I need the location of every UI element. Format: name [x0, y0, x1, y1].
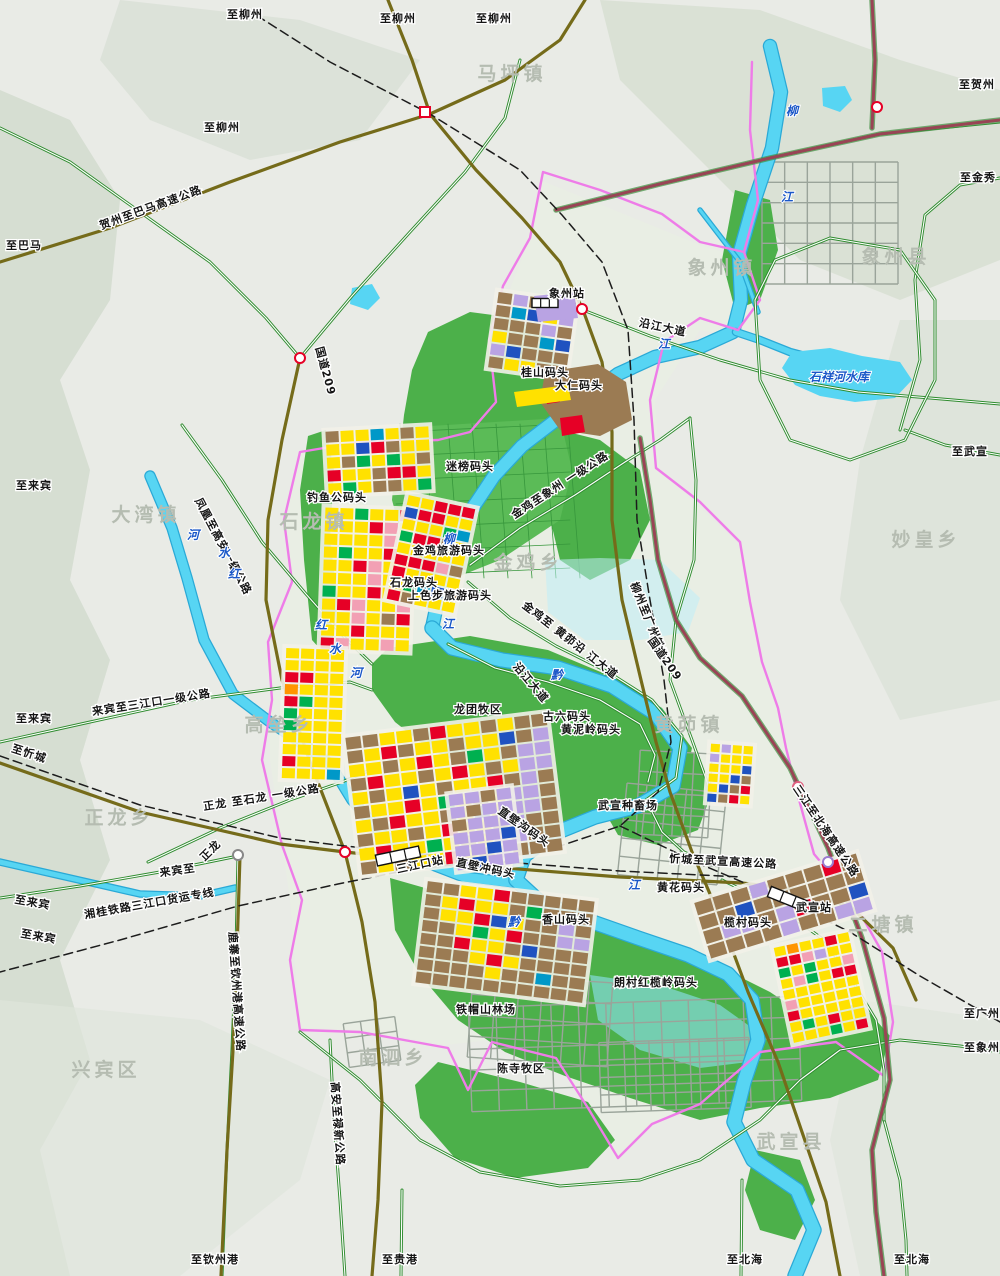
- map-label: 黄花码头: [657, 880, 705, 894]
- town-label: 黄茆镇: [654, 713, 723, 736]
- land-use-block: [327, 770, 340, 780]
- land-use-block: [327, 470, 341, 482]
- land-use-block: [539, 783, 555, 797]
- land-use-block: [316, 661, 329, 671]
- land-use-block: [457, 911, 473, 924]
- land-use-block: [538, 947, 554, 960]
- land-use-block: [338, 573, 351, 584]
- map-label: 古六码头: [543, 709, 591, 723]
- land-use-block: [523, 335, 538, 348]
- land-use-block: [381, 640, 394, 651]
- land-use-block: [330, 674, 343, 684]
- land-use-block: [313, 745, 326, 755]
- land-use-block: [518, 971, 534, 984]
- land-use-block: [508, 333, 523, 346]
- land-use-block: [368, 574, 381, 585]
- land-use-block: [554, 962, 570, 975]
- land-use-block: [420, 783, 436, 797]
- land-use-block: [434, 961, 450, 974]
- town-label: 南泗乡: [358, 1047, 427, 1069]
- land-use-block: [543, 810, 559, 824]
- land-use-block: [505, 943, 521, 956]
- land-use-block: [503, 956, 519, 969]
- land-use-block: [710, 754, 720, 763]
- land-use-block: [324, 533, 337, 544]
- land-use-block: [460, 885, 476, 898]
- map-label: 至巴马: [6, 239, 42, 252]
- land-use-block: [496, 788, 511, 801]
- land-use-block: [401, 440, 415, 452]
- land-use-block: [381, 614, 394, 625]
- land-use-block: [497, 292, 512, 305]
- land-use-block: [504, 852, 519, 865]
- land-use-block: [506, 346, 521, 359]
- land-use-block: [425, 825, 441, 839]
- land-use-block: [341, 443, 355, 455]
- land-use-block: [387, 454, 401, 466]
- map-label: 迷榜码头: [445, 459, 494, 473]
- land-use-block: [342, 469, 356, 481]
- land-use-block: [483, 980, 499, 993]
- land-use-block: [403, 785, 419, 799]
- land-use-block: [557, 327, 572, 340]
- land-use-block: [574, 938, 590, 951]
- land-use-block: [300, 673, 313, 683]
- land-use-block: [352, 792, 368, 806]
- land-use-block: [357, 833, 373, 847]
- land-use-block: [500, 982, 516, 995]
- land-use-block: [561, 898, 577, 911]
- land-use-block: [743, 756, 753, 765]
- land-use-block: [517, 984, 533, 997]
- land-use-block: [476, 900, 492, 913]
- land-use-block: [552, 975, 568, 988]
- land-use-block: [369, 548, 382, 559]
- land-use-block: [471, 939, 487, 952]
- land-use-block: [459, 898, 475, 911]
- land-use-block: [721, 754, 731, 763]
- land-use-block: [514, 715, 530, 729]
- land-use-block: [528, 894, 544, 907]
- land-use-block: [466, 978, 482, 991]
- land-use-block: [354, 548, 367, 559]
- land-use-block: [299, 697, 312, 707]
- land-use-block: [502, 759, 518, 773]
- land-use-block: [741, 786, 751, 795]
- land-use-block: [352, 587, 365, 598]
- land-use-block: [431, 740, 447, 754]
- land-use-block: [353, 561, 366, 572]
- town-label: 正龙乡: [84, 806, 153, 829]
- land-use-block: [743, 746, 753, 755]
- land-use-block: [342, 456, 356, 468]
- land-use-block: [328, 746, 341, 756]
- land-use-block: [449, 976, 465, 989]
- land-use-block: [450, 751, 466, 765]
- land-use-block: [300, 685, 313, 695]
- land-use-block: [511, 307, 526, 320]
- land-use-block: [402, 466, 416, 478]
- land-use-block: [413, 728, 429, 742]
- land-use-block: [359, 847, 375, 861]
- land-use-block: [469, 830, 484, 843]
- land-use-block: [366, 613, 379, 624]
- land-use-block: [480, 719, 496, 733]
- land-use-block: [465, 735, 481, 749]
- land-use-block: [297, 768, 310, 778]
- land-use-block: [385, 428, 399, 440]
- land-use-block: [297, 756, 310, 766]
- river-label: 水: [218, 546, 231, 560]
- land-use-block: [347, 750, 363, 764]
- town-label: 金鸡乡: [492, 551, 562, 574]
- land-use-block: [494, 318, 509, 331]
- land-use-block: [417, 465, 431, 477]
- land-use-block: [433, 753, 449, 767]
- land-use-block: [282, 768, 295, 778]
- land-use-block: [450, 806, 465, 819]
- land-use-block: [357, 468, 371, 480]
- land-use-block: [439, 922, 455, 935]
- land-use-block: [338, 560, 351, 571]
- land-use-block: [336, 612, 349, 623]
- land-use-block: [282, 756, 295, 766]
- land-use-block: [482, 733, 498, 747]
- land-use-block: [326, 444, 340, 456]
- land-use-block: [516, 729, 532, 743]
- land-use-block: [329, 710, 342, 720]
- land-use-block: [327, 758, 340, 768]
- map-label: 至柳州: [227, 7, 263, 21]
- land-use-block: [741, 776, 751, 785]
- land-use-block: [386, 787, 402, 801]
- land-use-block: [718, 794, 728, 803]
- land-use-block: [455, 924, 471, 937]
- land-use-block: [384, 774, 400, 788]
- land-use-block: [730, 785, 740, 794]
- land-use-block: [484, 815, 499, 828]
- junction-node: [233, 850, 243, 860]
- land-use-block: [379, 732, 395, 746]
- map-label: 至贺州: [959, 77, 995, 91]
- map-label: 至金秀: [960, 170, 996, 184]
- land-use-block: [511, 892, 527, 905]
- land-use-block: [336, 625, 349, 636]
- map-label: 黄泥岭码头: [561, 722, 621, 736]
- land-use-block: [401, 771, 417, 785]
- land-use-block: [361, 861, 377, 875]
- land-use-block: [402, 453, 416, 465]
- land-use-block: [312, 769, 325, 779]
- land-use-block: [570, 964, 586, 977]
- land-use-block: [337, 586, 350, 597]
- land-use-block: [355, 509, 368, 520]
- land-use-block: [521, 771, 537, 785]
- land-use-block: [408, 827, 424, 841]
- land-use-block: [420, 933, 436, 946]
- land-use-block: [495, 305, 510, 318]
- land-use-block: [284, 696, 297, 706]
- land-use-block: [485, 828, 500, 841]
- land-use-block: [509, 320, 524, 333]
- land-use-block: [372, 468, 386, 480]
- land-use-block: [447, 724, 463, 738]
- land-use-block: [286, 660, 299, 670]
- land-use-block: [452, 765, 468, 779]
- land-use-block: [453, 832, 468, 845]
- land-use-block: [418, 769, 434, 783]
- land-use-block: [323, 572, 336, 583]
- land-use-block: [423, 811, 439, 825]
- land-use-block: [467, 749, 483, 763]
- land-use-block: [486, 954, 502, 967]
- land-use-block: [523, 932, 539, 945]
- land-use-block: [371, 442, 385, 454]
- land-use-block: [494, 889, 510, 902]
- land-use-block: [557, 936, 573, 949]
- land-use-block: [322, 598, 335, 609]
- land-use-block: [426, 839, 442, 853]
- land-use-block: [708, 774, 718, 783]
- junction-node: [295, 353, 305, 363]
- land-use-block: [366, 639, 379, 650]
- land-use-block: [484, 747, 500, 761]
- land-use-block: [555, 339, 570, 352]
- land-use-block: [301, 649, 314, 659]
- land-use-block: [492, 902, 508, 915]
- land-use-block: [501, 969, 517, 982]
- land-use-block: [421, 797, 437, 811]
- land-use-block: [354, 535, 367, 546]
- land-use-block: [351, 612, 364, 623]
- map-label: 上色步旅游码头: [408, 588, 492, 602]
- land-use-block: [367, 776, 383, 790]
- map-label: 榄村码头: [724, 915, 772, 929]
- land-use-block: [355, 522, 368, 533]
- river-label: 石祥河水库: [809, 370, 871, 384]
- land-use-block: [435, 767, 451, 781]
- land-use-block: [452, 819, 467, 832]
- map-label: 至象州: [964, 1040, 1000, 1054]
- land-use-block: [555, 949, 571, 962]
- land-use-block: [389, 815, 405, 829]
- land-use-block: [732, 745, 742, 754]
- land-use-block: [417, 452, 431, 464]
- land-use-block: [367, 587, 380, 598]
- map-label: 至柳州: [476, 11, 512, 25]
- land-use-block: [731, 765, 741, 774]
- land-use-block: [501, 826, 516, 839]
- river-label: 红: [228, 567, 242, 581]
- land-use-block: [353, 574, 366, 585]
- land-use-block: [437, 935, 453, 948]
- land-use-block: [396, 614, 409, 625]
- land-use-block: [524, 799, 540, 813]
- land-use-block: [316, 649, 329, 659]
- land-use-block: [366, 626, 379, 637]
- land-use-block: [329, 698, 342, 708]
- land-use-block: [325, 431, 339, 443]
- land-use-block: [572, 951, 588, 964]
- land-use-block: [315, 673, 328, 683]
- land-use-block: [709, 764, 719, 773]
- land-use-block: [385, 523, 398, 534]
- land-use-block: [418, 478, 432, 490]
- map-label: 桂山码头: [520, 365, 569, 379]
- map-label: 龙团牧区: [453, 702, 502, 716]
- land-use-block: [526, 906, 542, 919]
- land-use-block: [381, 627, 394, 638]
- land-use-block: [466, 804, 481, 817]
- land-use-block: [454, 937, 470, 950]
- land-use-block: [349, 764, 365, 778]
- river-label: 柳: [786, 104, 800, 118]
- map-label: 武宣种畜场: [598, 798, 658, 812]
- land-use-block: [364, 748, 380, 762]
- land-use-block: [430, 726, 446, 740]
- land-use-block: [351, 638, 364, 649]
- land-use-block: [469, 952, 485, 965]
- river-label: 江: [781, 190, 795, 204]
- land-use-block: [471, 843, 486, 856]
- map-label: 陈寺牧区: [497, 1061, 545, 1075]
- land-use-block: [386, 441, 400, 453]
- land-use-block: [328, 722, 341, 732]
- land-use-block: [385, 510, 398, 521]
- map-label: 朗村红榄岭码头: [614, 975, 698, 989]
- land-use-block: [423, 907, 439, 920]
- land-use-block: [489, 928, 505, 941]
- map-label: 铁帽山林场: [456, 1002, 516, 1016]
- land-use-block: [404, 799, 420, 813]
- land-use-block: [381, 746, 397, 760]
- land-use-block: [328, 734, 341, 744]
- land-use-block: [351, 625, 364, 636]
- land-use-block: [355, 429, 369, 441]
- land-use-block: [362, 734, 378, 748]
- land-use-block: [534, 986, 550, 999]
- map-label: 石龙码头: [389, 575, 438, 589]
- land-use-block: [730, 775, 740, 784]
- land-use-block: [497, 717, 513, 731]
- land-use-block: [517, 743, 533, 757]
- land-use-block: [322, 585, 335, 596]
- land-use-block: [520, 958, 536, 971]
- land-use-block: [440, 909, 456, 922]
- land-use-block: [301, 661, 314, 671]
- land-use-block: [435, 948, 451, 961]
- land-use-block: [313, 721, 326, 731]
- land-use-block: [463, 721, 479, 735]
- land-use-block: [522, 348, 537, 361]
- river-label: 江: [658, 337, 672, 351]
- land-use-block: [525, 322, 540, 335]
- town-label: 象州县: [861, 245, 930, 268]
- map-label: 至来宾: [16, 711, 52, 725]
- land-use-block: [569, 977, 585, 990]
- land-use-block: [519, 757, 535, 771]
- land-use-block: [387, 467, 401, 479]
- land-use-block: [540, 934, 556, 947]
- map-label: 至北海: [727, 1252, 763, 1266]
- land-use-block: [352, 599, 365, 610]
- town-label: 大湾镇: [111, 503, 180, 526]
- land-use-block: [327, 457, 341, 469]
- land-use-block: [425, 894, 441, 907]
- land-use-block: [451, 963, 467, 976]
- land-use-block: [415, 426, 429, 438]
- map-label: 至贵港: [382, 1252, 418, 1266]
- land-use-block: [388, 480, 402, 492]
- land-use-block: [314, 697, 327, 707]
- land-use-block: [374, 831, 390, 845]
- land-use-block: [403, 479, 417, 491]
- land-use-block: [485, 761, 501, 775]
- land-use-block: [506, 930, 522, 943]
- planning-map: 至柳州至柳州至柳州至柳州至贺州至金秀至巴马贺州至巴马高速公路国道209至武宣至来…: [0, 0, 1000, 1276]
- junction-node: [823, 857, 833, 867]
- land-use-block: [314, 709, 327, 719]
- land-use-block: [370, 429, 384, 441]
- land-use-block: [371, 803, 387, 817]
- land-use-block: [285, 672, 298, 682]
- land-use-block: [406, 813, 422, 827]
- land-use-block: [383, 760, 399, 774]
- land-use-block: [740, 796, 750, 805]
- land-use-block: [398, 744, 414, 758]
- map-label: 至钦州港: [191, 1252, 239, 1266]
- land-use-block: [391, 829, 407, 843]
- town-label: 马坪镇: [477, 62, 546, 85]
- land-use-block: [708, 784, 718, 793]
- land-use-block: [492, 331, 507, 344]
- land-use-block: [372, 455, 386, 467]
- junction-node: [872, 102, 882, 112]
- land-use-block: [449, 793, 464, 806]
- town-label: 武宣县: [756, 1130, 825, 1153]
- land-use-block: [330, 686, 343, 696]
- land-use-block: [521, 945, 537, 958]
- land-use-block: [283, 744, 296, 754]
- land-use-block: [442, 896, 458, 909]
- land-use-block: [340, 430, 354, 442]
- land-use-block: [422, 920, 438, 933]
- land-use-block: [416, 439, 430, 451]
- land-use-block: [484, 967, 500, 980]
- town-label: 高垒乡: [244, 713, 313, 736]
- land-use-block: [487, 841, 502, 854]
- land-use-block: [575, 926, 591, 939]
- land-use-block: [370, 509, 383, 520]
- land-use-block: [711, 744, 721, 753]
- land-use-block: [525, 919, 541, 932]
- land-use-block: [399, 758, 415, 772]
- land-use-block: [499, 731, 515, 745]
- land-use-block: [732, 755, 742, 764]
- land-use-block: [324, 546, 337, 557]
- land-use-block: [464, 791, 479, 804]
- land-use-block: [415, 742, 431, 756]
- land-use-block: [427, 881, 443, 894]
- map-label: 至广州: [964, 1006, 1000, 1020]
- land-use-block: [448, 737, 464, 751]
- map-label: 香山码头: [541, 912, 590, 926]
- land-use-block: [523, 785, 539, 799]
- land-use-block: [545, 896, 561, 909]
- land-use-block: [480, 789, 495, 802]
- land-use-block: [337, 599, 350, 610]
- land-use-block: [372, 817, 388, 831]
